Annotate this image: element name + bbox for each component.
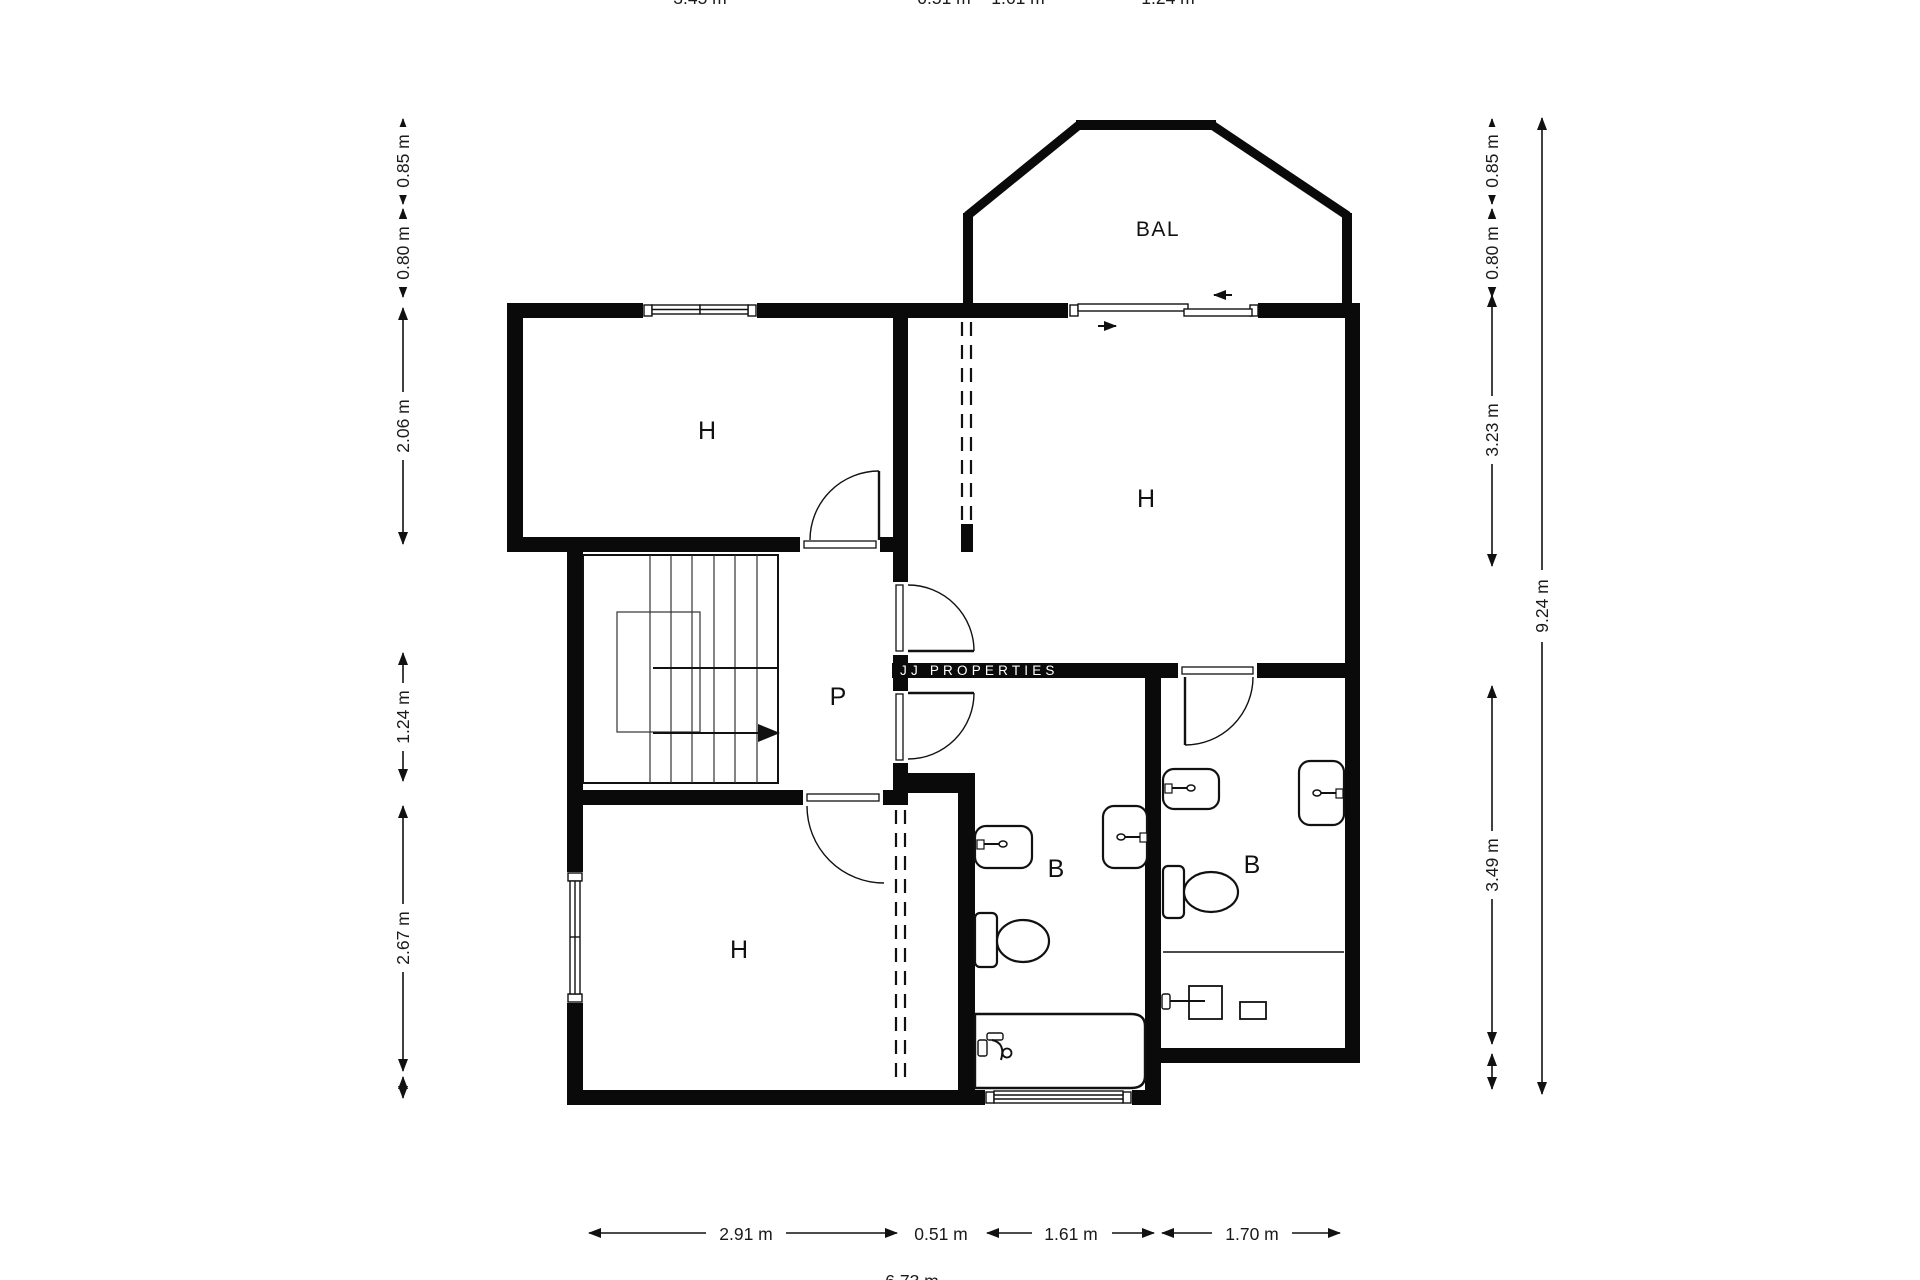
- toilet-tank-icon: [975, 913, 997, 967]
- dim-left-1: 0.80 m: [393, 226, 413, 280]
- room-label-bedroom-bottom-left: H: [730, 936, 748, 964]
- drain-icon: [1003, 1049, 1012, 1058]
- door-bottom-left-room: [807, 794, 884, 883]
- dim-bottom-1: 0.51 m: [914, 1224, 968, 1244]
- dim-top-partial-0: 3.45 m: [673, 0, 727, 8]
- wall-cabinet-icon: [1240, 1002, 1266, 1019]
- toilet-bowl-icon: [1184, 872, 1238, 912]
- room-label-balcony: BAL: [1136, 218, 1180, 241]
- balcony-wall-right: [1342, 213, 1352, 305]
- watermark-text: JJ PROPERTIES: [900, 663, 1059, 678]
- dim-top-partial-2: 1.61 m: [991, 0, 1045, 8]
- faucet-icon: [977, 840, 984, 849]
- window-top-left: [644, 305, 756, 316]
- toilet-tank-icon: [1163, 866, 1184, 918]
- dim-top-partial-1: 0.51 m: [917, 0, 971, 8]
- dim-left-3: 1.24 m: [393, 690, 413, 744]
- shower-tray-icon: [1189, 986, 1222, 1019]
- balcony-walls: [963, 120, 1352, 305]
- dim-bottom-partial: 6.73 m: [885, 1271, 939, 1280]
- dimension-right-outer: 9.24 m: [1532, 118, 1552, 1094]
- door-top-left-room: [804, 471, 879, 548]
- wall-cap-dashed-top: [961, 524, 973, 552]
- wall-bathroom-divider: [1145, 663, 1161, 1105]
- wall-left-lower: [567, 538, 583, 1105]
- room-label-bedroom-top-right: H: [1137, 485, 1155, 513]
- toilet-bowl-icon: [997, 920, 1049, 962]
- balcony-wall-diagonal-right: [1212, 125, 1348, 216]
- room-label-bedroom-top-left: H: [698, 417, 716, 445]
- window-left-wall: [568, 873, 582, 1002]
- dim-bottom-0: 2.91 m: [719, 1224, 773, 1244]
- door-bathroom-right: [1182, 667, 1253, 745]
- dim-bottom-3: 1.70 m: [1225, 1224, 1279, 1244]
- dim-left-4: 2.67 m: [393, 911, 413, 965]
- balcony-wall-diagonal-left: [967, 125, 1079, 216]
- window-bottom-wall: [986, 1091, 1131, 1103]
- staircase: [583, 555, 780, 783]
- bathroom-left-fixtures: [975, 806, 1147, 1088]
- dim-bottom-2: 1.61 m: [1044, 1224, 1098, 1244]
- wall-right-exterior: [1345, 303, 1360, 1063]
- shower-head-icon: [1162, 994, 1170, 1009]
- floor-plan: JJ PROPERTIES H H P H B B BAL 0.85 m 0.8…: [0, 0, 1920, 1280]
- wall-bathroom-left-west: [958, 781, 975, 1090]
- dim-left-0: 0.85 m: [393, 134, 413, 188]
- dim-right-1: 0.80 m: [1482, 226, 1502, 280]
- wall-bottom-right: [1161, 1048, 1360, 1063]
- dim-right-2: 3.23 m: [1482, 403, 1502, 457]
- bathtub-icon: [975, 1014, 1145, 1088]
- bathroom-right-fixtures: [1162, 761, 1344, 1019]
- faucet-icon: [1165, 784, 1172, 793]
- dim-left-2: 2.06 m: [393, 399, 413, 453]
- dimensions-left: 0.85 m 0.80 m 2.06 m 1.24 m 2.67 m: [393, 119, 413, 1098]
- room-label-bathroom-right: B: [1244, 851, 1261, 879]
- balcony-wall-left: [963, 213, 973, 305]
- room-label-landing: P: [830, 683, 847, 711]
- dim-total-height: 9.24 m: [1532, 579, 1552, 633]
- dim-right-0: 0.85 m: [1482, 134, 1502, 188]
- faucet-icon: [1140, 833, 1147, 842]
- faucet-icon: [1336, 789, 1343, 798]
- dimensions-right-inner: 0.85 m 0.80 m 3.23 m 3.49 m: [1482, 119, 1502, 1089]
- dimensions-bottom: 2.91 m 0.51 m 1.61 m 1.70 m: [589, 1221, 1340, 1245]
- dim-top-partial-3: 1.24 m: [1141, 0, 1195, 8]
- room-label-bathroom-left: B: [1048, 855, 1065, 883]
- wall-left-upper: [507, 303, 523, 551]
- balcony-wall-top: [1076, 120, 1216, 130]
- floorplan-page: { "page": { "background": "#ffffff", "in…: [0, 0, 1920, 1280]
- dim-right-3: 3.49 m: [1482, 838, 1502, 892]
